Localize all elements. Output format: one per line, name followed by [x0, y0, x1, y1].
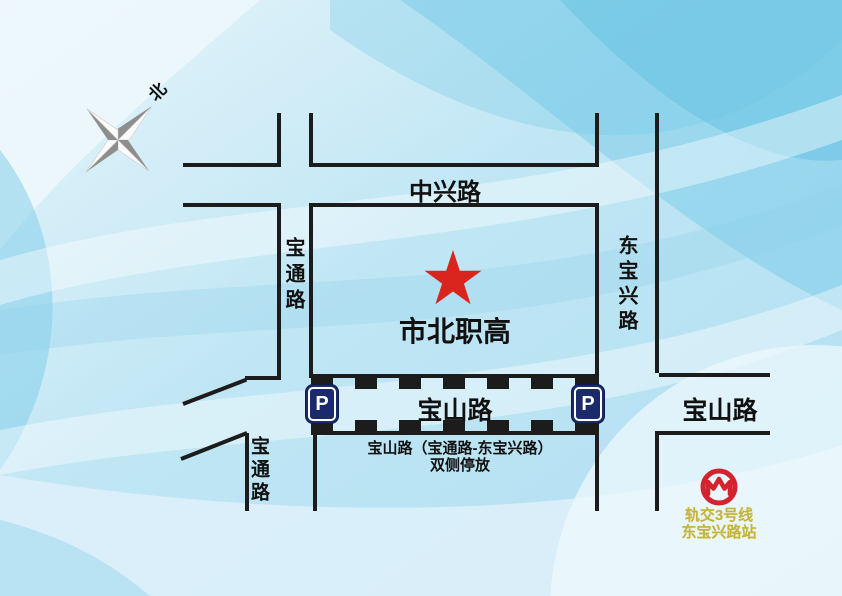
parking-icon: P [308, 387, 336, 421]
road-edge-line [595, 203, 599, 511]
road-edge-line [277, 203, 281, 380]
road-baoshan-center-label: 宝山路 [385, 391, 525, 427]
metro-logo-icon [698, 466, 740, 508]
school-label: 市北职高 [355, 310, 555, 350]
road-baotong-north-label: 宝通路 [283, 237, 303, 315]
school-star-icon [421, 248, 485, 312]
road-dongbaoxing-label: 东宝兴路 [616, 235, 636, 335]
road-edge-line [595, 113, 599, 167]
road-baotong-south-label: 宝通路 [249, 436, 268, 505]
road-edge-line [655, 431, 770, 435]
road-edge-line [655, 113, 659, 373]
metro-station-label: 轨交3号线 东宝兴路站 [649, 507, 789, 541]
parking-note-line2: 双侧停放 [325, 457, 595, 474]
road-baoshan-east-label: 宝山路 [650, 391, 790, 427]
road-edge-line [655, 431, 659, 511]
road-edge-line [309, 203, 313, 378]
road-edge-line [245, 376, 281, 380]
road-edge-line [183, 203, 279, 207]
parking-note: 宝山路（宝通路-东宝兴路） 双侧停放 [325, 440, 595, 474]
metro-station-name: 东宝兴路站 [649, 524, 789, 541]
metro-line-label: 轨交3号线 [649, 507, 789, 524]
road-edge-line [277, 113, 281, 167]
road-zhongxing-label: 中兴路 [375, 172, 515, 207]
road-edge-line [311, 431, 597, 435]
road-edge-line [309, 113, 313, 167]
parking-sign-right: P [572, 385, 604, 423]
road-edge-line [659, 373, 770, 377]
road-edge-line [183, 163, 279, 167]
parking-dashes-top [311, 378, 597, 389]
road-edge-line [313, 163, 597, 167]
road-edge-line [313, 431, 317, 511]
parking-note-line1: 宝山路（宝通路-东宝兴路） [325, 440, 595, 457]
parking-sign-left: P [306, 385, 338, 423]
parking-icon: P [574, 387, 602, 421]
map-canvas: 北 P P 中兴路 宝通路 东宝兴路 市北职高 宝山路 [0, 0, 842, 596]
